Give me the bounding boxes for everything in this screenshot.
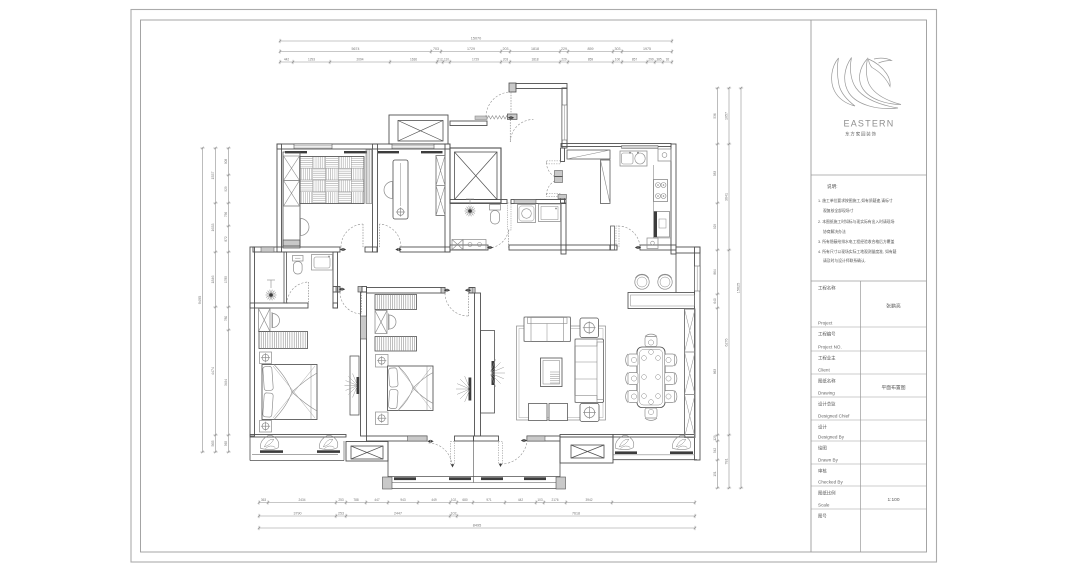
svg-text:Drawing: Drawing [818,391,835,396]
svg-text:请及时与设计师联系确认.: 请及时与设计师联系确认. [823,258,866,263]
svg-text:观复核全部现场寸: 观复核全部现场寸 [823,208,854,213]
svg-text:3790: 3790 [294,512,302,516]
svg-text:Drawn By: Drawn By [818,458,839,463]
svg-text:442: 442 [284,58,290,62]
svg-text:设计总监: 设计总监 [818,401,836,408]
svg-text:102: 102 [451,512,457,516]
svg-text:2434: 2434 [298,498,305,502]
svg-text:110: 110 [444,58,449,62]
svg-text:图纸名称: 图纸名称 [818,378,836,385]
svg-text:565: 565 [224,441,228,447]
svg-text:536: 536 [713,113,717,119]
svg-text:1975: 1975 [643,47,651,51]
svg-text:Client: Client [818,368,830,373]
svg-text:1636: 1636 [410,58,417,62]
svg-text:工程业主: 工程业主 [818,355,836,362]
svg-text:442: 442 [518,498,524,502]
svg-text:2176: 2176 [551,498,558,502]
svg-text:872: 872 [224,236,228,242]
svg-text:943: 943 [400,498,406,502]
svg-text:253: 253 [338,512,344,516]
svg-text:1:100: 1:100 [887,497,899,503]
svg-text:6276: 6276 [725,339,729,347]
svg-text:788: 788 [353,498,359,502]
svg-text:857: 857 [632,58,638,62]
svg-text:103: 103 [537,498,543,502]
svg-text:1537: 1537 [211,172,215,180]
svg-text:Project NO.: Project NO. [818,345,842,350]
svg-text:100: 100 [615,58,621,62]
svg-text:3942: 3942 [585,498,592,502]
svg-text:859: 859 [588,47,594,51]
svg-text:工程编号: 工程编号 [818,331,836,338]
svg-text:151: 151 [713,471,717,477]
svg-text:781: 781 [725,459,729,465]
svg-text:102: 102 [451,498,457,502]
svg-text:审核: 审核 [818,468,827,475]
svg-text:583: 583 [713,171,717,177]
svg-text:1729: 1729 [467,47,475,51]
svg-text:385: 385 [656,58,662,62]
svg-text:908: 908 [224,159,228,165]
svg-text:363: 363 [261,498,267,502]
svg-text:129: 129 [713,435,717,441]
svg-text:2447: 2447 [394,512,402,516]
svg-text:2094: 2094 [356,58,363,62]
svg-text:203: 203 [503,58,509,62]
svg-text:说明:: 说明: [827,183,837,190]
svg-text:565: 565 [211,441,215,447]
svg-text:863: 863 [713,369,717,375]
svg-text:92: 92 [666,58,670,62]
svg-text:Designed Chief: Designed Chief [818,414,850,419]
svg-text:7618: 7618 [572,512,580,516]
svg-text:协商解决办法: 协商解决办法 [823,229,846,234]
svg-text:工程名称: 工程名称 [818,285,836,292]
svg-text:229: 229 [561,58,567,62]
svg-text:780: 780 [224,316,228,322]
svg-text:Scale: Scale [818,503,830,508]
svg-text:15625: 15625 [737,283,741,294]
svg-text:1729: 1729 [472,58,479,62]
svg-text:3. 所有隐蔽给排水电工程经验收合格后方覆盖: 3. 所有隐蔽给排水电工程经验收合格后方覆盖 [818,239,895,244]
svg-text:929: 929 [224,186,228,192]
svg-text:640: 640 [713,298,717,304]
svg-text:859: 859 [588,58,594,62]
svg-text:1846: 1846 [211,276,215,284]
svg-text:253: 253 [338,498,344,502]
svg-text:971: 971 [486,498,492,502]
svg-text:Designed By: Designed By [818,435,845,440]
svg-text:3641: 3641 [725,193,729,201]
svg-text:542: 542 [713,448,717,454]
svg-text:680: 680 [462,498,468,502]
svg-text:9495: 9495 [198,296,202,304]
svg-text:Project: Project [818,321,833,326]
svg-text:449: 449 [431,498,437,502]
svg-text:5674: 5674 [352,47,360,51]
svg-text:图纸比例: 图纸比例 [818,490,836,497]
svg-text:2. 本图纸施工时如标与现实际有出入时请现场: 2. 本图纸施工时如标与现实际有出入时请现场 [818,219,895,224]
svg-text:设计: 设计 [818,424,827,431]
svg-text:15070: 15070 [471,37,482,41]
svg-text:Checked By: Checked By [818,480,843,485]
svg-text:4474: 4474 [211,367,215,375]
svg-text:212: 212 [437,58,443,62]
svg-text:703: 703 [433,47,439,51]
svg-text:张鹏亮: 张鹏亮 [886,303,901,310]
svg-text:299: 299 [648,58,654,62]
svg-text:229: 229 [561,47,567,51]
svg-text:1. 施工单位要求按图施工,如有质疑速,请标寸: 1. 施工单位要求按图施工,如有质疑速,请标寸 [818,198,893,203]
svg-text:东方家园装饰: 东方家园装饰 [845,131,877,138]
svg-text:8495: 8495 [473,524,481,528]
svg-text:1818: 1818 [531,58,538,62]
svg-text:1785: 1785 [224,276,228,283]
svg-text:303: 303 [615,47,621,51]
svg-text:1633: 1633 [211,224,215,232]
svg-text:平面布置图: 平面布置图 [882,384,906,391]
svg-text:4. 所有尺寸以现场实际工地观测量度准, 如有疑: 4. 所有尺寸以现场实际工地观测量度准, 如有疑 [818,249,897,254]
svg-text:929: 929 [713,224,717,230]
svg-text:EASTERN: EASTERN [844,119,895,129]
svg-text:756: 756 [224,212,228,218]
svg-text:绘图: 绘图 [818,445,827,452]
svg-text:1293: 1293 [308,58,315,62]
svg-text:864: 864 [713,269,717,275]
svg-text:203: 203 [503,47,509,51]
svg-text:1057: 1057 [725,112,729,120]
svg-text:3494: 3494 [224,379,228,386]
svg-text:447: 447 [374,498,380,502]
svg-text:1818: 1818 [531,47,539,51]
